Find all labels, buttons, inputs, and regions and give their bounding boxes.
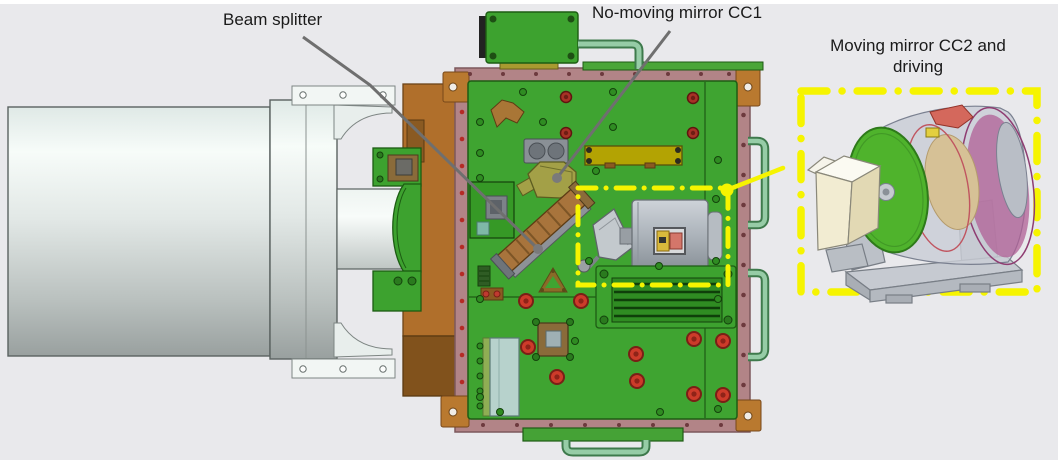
tube-mount-tab-bottom <box>292 359 395 378</box>
square-mount <box>533 319 574 361</box>
shaft-clamp-mount <box>524 139 568 163</box>
teal-module <box>477 338 519 416</box>
beam-splitter-label: Beam splitter <box>223 9 322 30</box>
figure-interferometer-layout: Beam splitter No-moving mirror CC1 Movin… <box>0 0 1058 468</box>
moving-mirror-drive <box>620 200 722 274</box>
fixed-mirror-label: No-moving mirror CC1 <box>592 2 762 23</box>
beam-splitter-leader-dot <box>533 244 543 254</box>
moving-mirror-label-line2: driving <box>793 56 1043 77</box>
fixed-mirror-leader-dot <box>552 173 562 183</box>
yellow-component <box>926 128 939 137</box>
moving-mirror-label: Moving mirror CC2 and driving <box>793 35 1043 77</box>
moving-mirror-label-line1: Moving mirror CC2 and <box>793 35 1043 56</box>
connector-box <box>479 12 578 63</box>
yellow-optic-bar <box>585 146 682 168</box>
highlight-leader-dot <box>721 184 734 197</box>
